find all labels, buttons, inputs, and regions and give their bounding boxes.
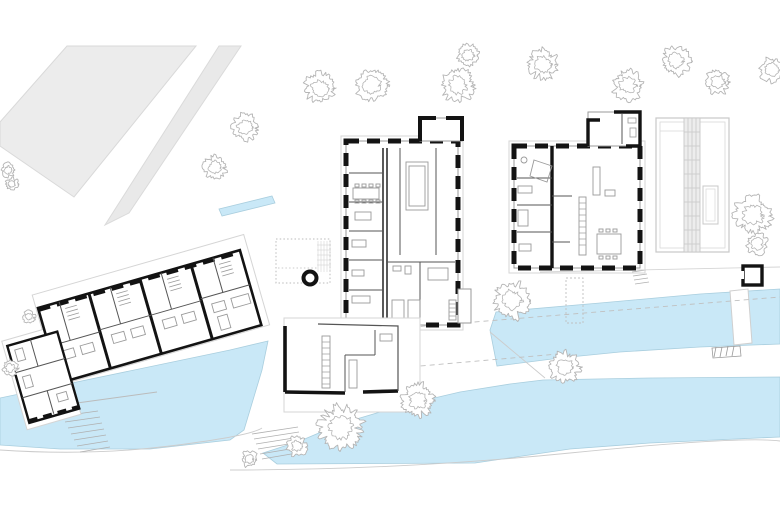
field-parcel [0, 46, 196, 197]
center-right-annex [458, 289, 471, 323]
tree [1, 162, 15, 178]
well-circle-symbol [304, 272, 317, 285]
building-lower-annex [284, 318, 420, 412]
annex-south-wall [285, 391, 398, 393]
shed-square-symbol [739, 266, 762, 285]
shed-door-gap [739, 271, 744, 279]
tree [732, 194, 774, 236]
stairs-east-building [632, 270, 649, 284]
right-top-annex [588, 112, 640, 146]
tree [759, 57, 780, 84]
tree [457, 43, 480, 67]
tree [527, 47, 558, 81]
tree [303, 70, 336, 102]
building-right [509, 112, 645, 273]
center-top-annex [420, 118, 462, 141]
site-plan-canvas [0, 0, 780, 520]
tree [202, 154, 228, 179]
tree [746, 233, 768, 256]
building-center [341, 118, 471, 330]
canal-sliver [219, 196, 275, 216]
far-right-glass-strip [684, 118, 700, 252]
tree [612, 68, 644, 103]
dike-hatch-ramp [712, 346, 741, 358]
terrace-grid [317, 241, 331, 272]
tree [662, 46, 692, 78]
center-wall-thin [346, 141, 458, 325]
tree [231, 112, 259, 142]
tree [23, 310, 36, 323]
tree [5, 177, 19, 190]
building-far-right-roof [656, 118, 729, 252]
annex-roof-outline [284, 318, 420, 412]
pier [730, 289, 752, 345]
tree [706, 70, 731, 95]
field-polygon [0, 46, 196, 197]
tree [355, 70, 389, 102]
tree [441, 68, 476, 103]
